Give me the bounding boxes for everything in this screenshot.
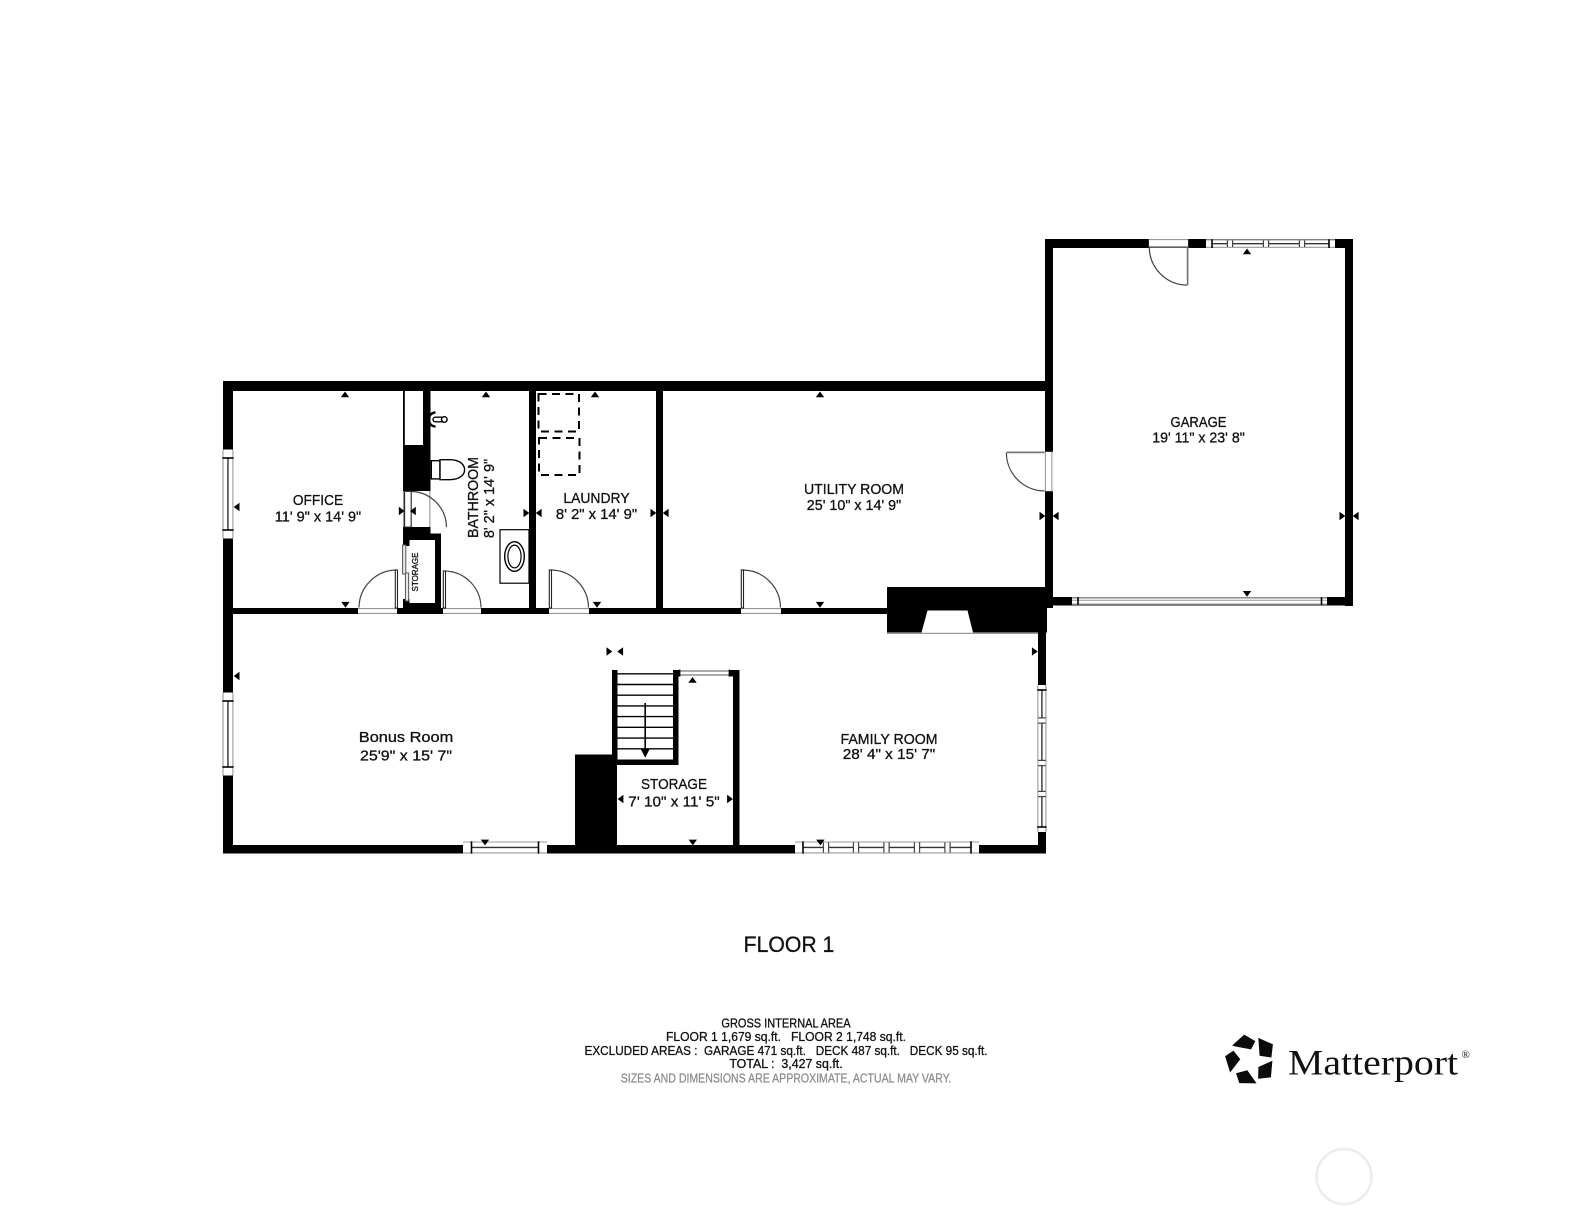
svg-text:19' 11" x 23' 8": 19' 11" x 23' 8" xyxy=(1152,430,1245,447)
svg-text:GROSS INTERNAL AREA: GROSS INTERNAL AREA xyxy=(721,1015,850,1030)
svg-text:8' 2" x 14' 9": 8' 2" x 14' 9" xyxy=(556,506,637,523)
svg-text:FLOOR 1: FLOOR 1 xyxy=(744,932,835,957)
svg-text:STORAGE: STORAGE xyxy=(411,553,420,592)
svg-text:UTILITY ROOM: UTILITY ROOM xyxy=(804,481,904,498)
svg-text:OFFICE: OFFICE xyxy=(293,492,343,509)
svg-text:STORAGE: STORAGE xyxy=(641,776,707,793)
svg-text:25'9" x 15' 7": 25'9" x 15' 7" xyxy=(360,748,452,765)
svg-text:11' 9" x 14' 9": 11' 9" x 14' 9" xyxy=(275,509,361,526)
svg-text:LAUNDRY: LAUNDRY xyxy=(563,490,629,507)
svg-text:Matterport: Matterport xyxy=(1288,1043,1458,1083)
svg-text:Bonus Room: Bonus Room xyxy=(359,729,453,746)
svg-text:SIZES AND DIMENSIONS ARE APPRO: SIZES AND DIMENSIONS ARE APPROXIMATE, AC… xyxy=(621,1071,952,1086)
svg-text:7' 10" x 11' 5": 7' 10" x 11' 5" xyxy=(628,794,719,811)
svg-text:28' 4" x 15' 7": 28' 4" x 15' 7" xyxy=(843,746,936,763)
svg-text:®: ® xyxy=(1462,1049,1470,1061)
svg-text:BATHROOM: BATHROOM xyxy=(465,457,482,538)
svg-text:TOTAL : 3,427 sq.ft.: TOTAL : 3,427 sq.ft. xyxy=(729,1056,842,1071)
svg-text:25' 10" x 14' 9": 25' 10" x 14' 9" xyxy=(807,497,901,514)
svg-text:8' 2" x 14' 9": 8' 2" x 14' 9" xyxy=(481,459,498,538)
svg-text:GARAGE: GARAGE xyxy=(1171,414,1227,431)
